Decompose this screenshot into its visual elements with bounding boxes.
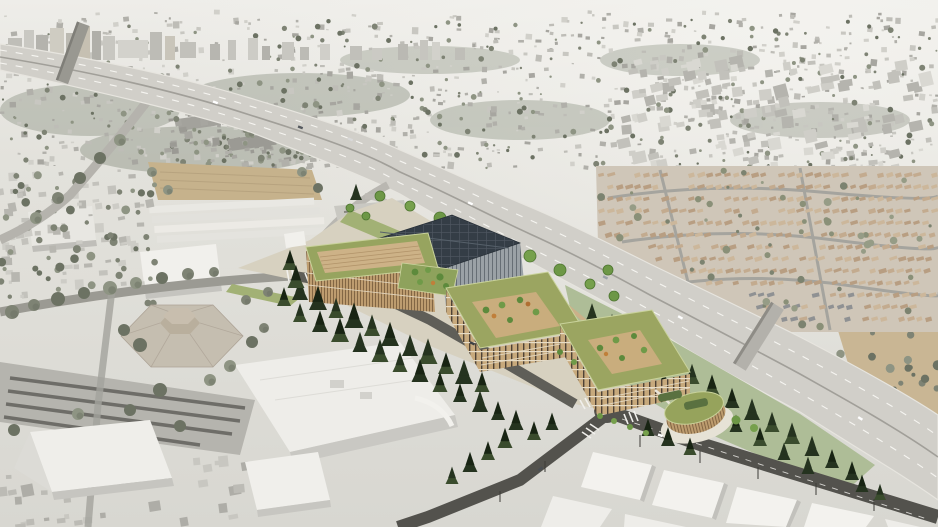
aerial-rendering: [0, 0, 938, 527]
scene-svg: [0, 0, 938, 527]
office-nw-annex: [284, 231, 306, 248]
small-white-box: [245, 452, 331, 517]
